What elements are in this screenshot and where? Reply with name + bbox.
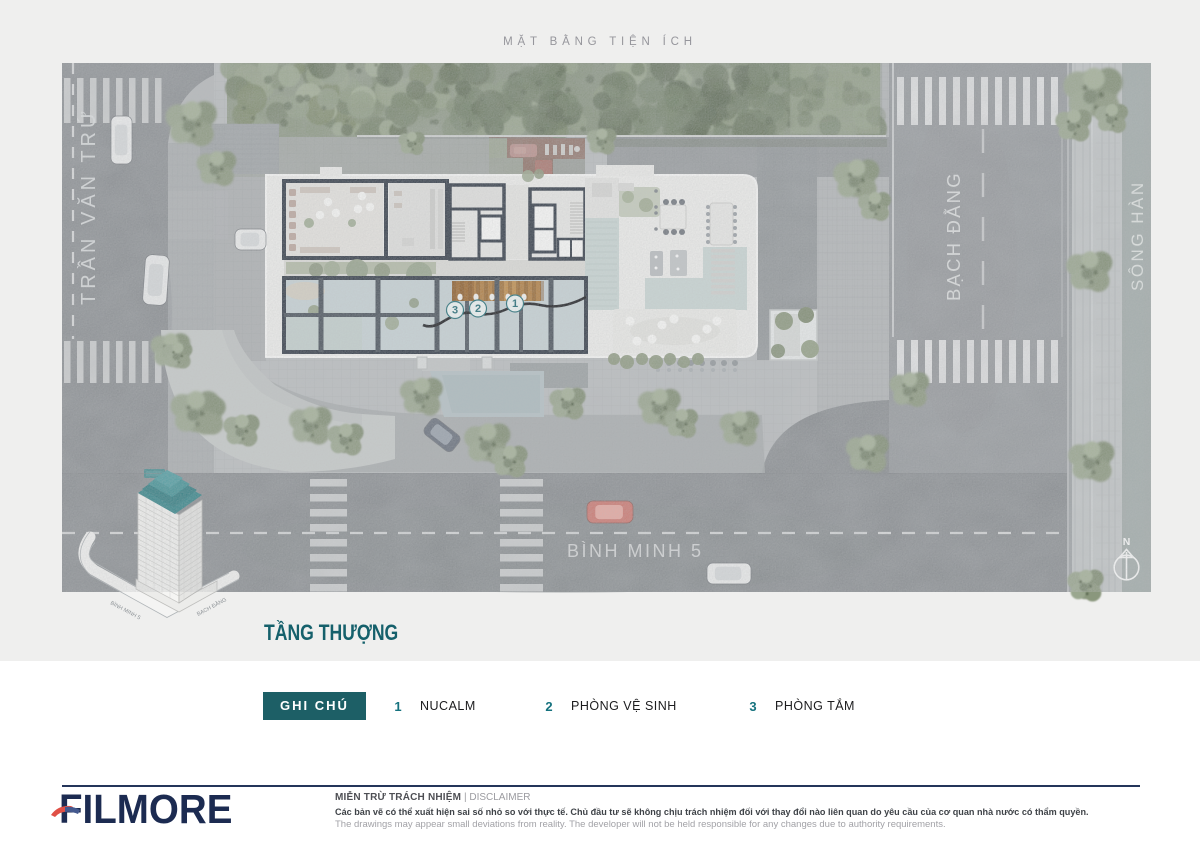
- svg-text:BÌNH MINH 5: BÌNH MINH 5: [109, 600, 142, 622]
